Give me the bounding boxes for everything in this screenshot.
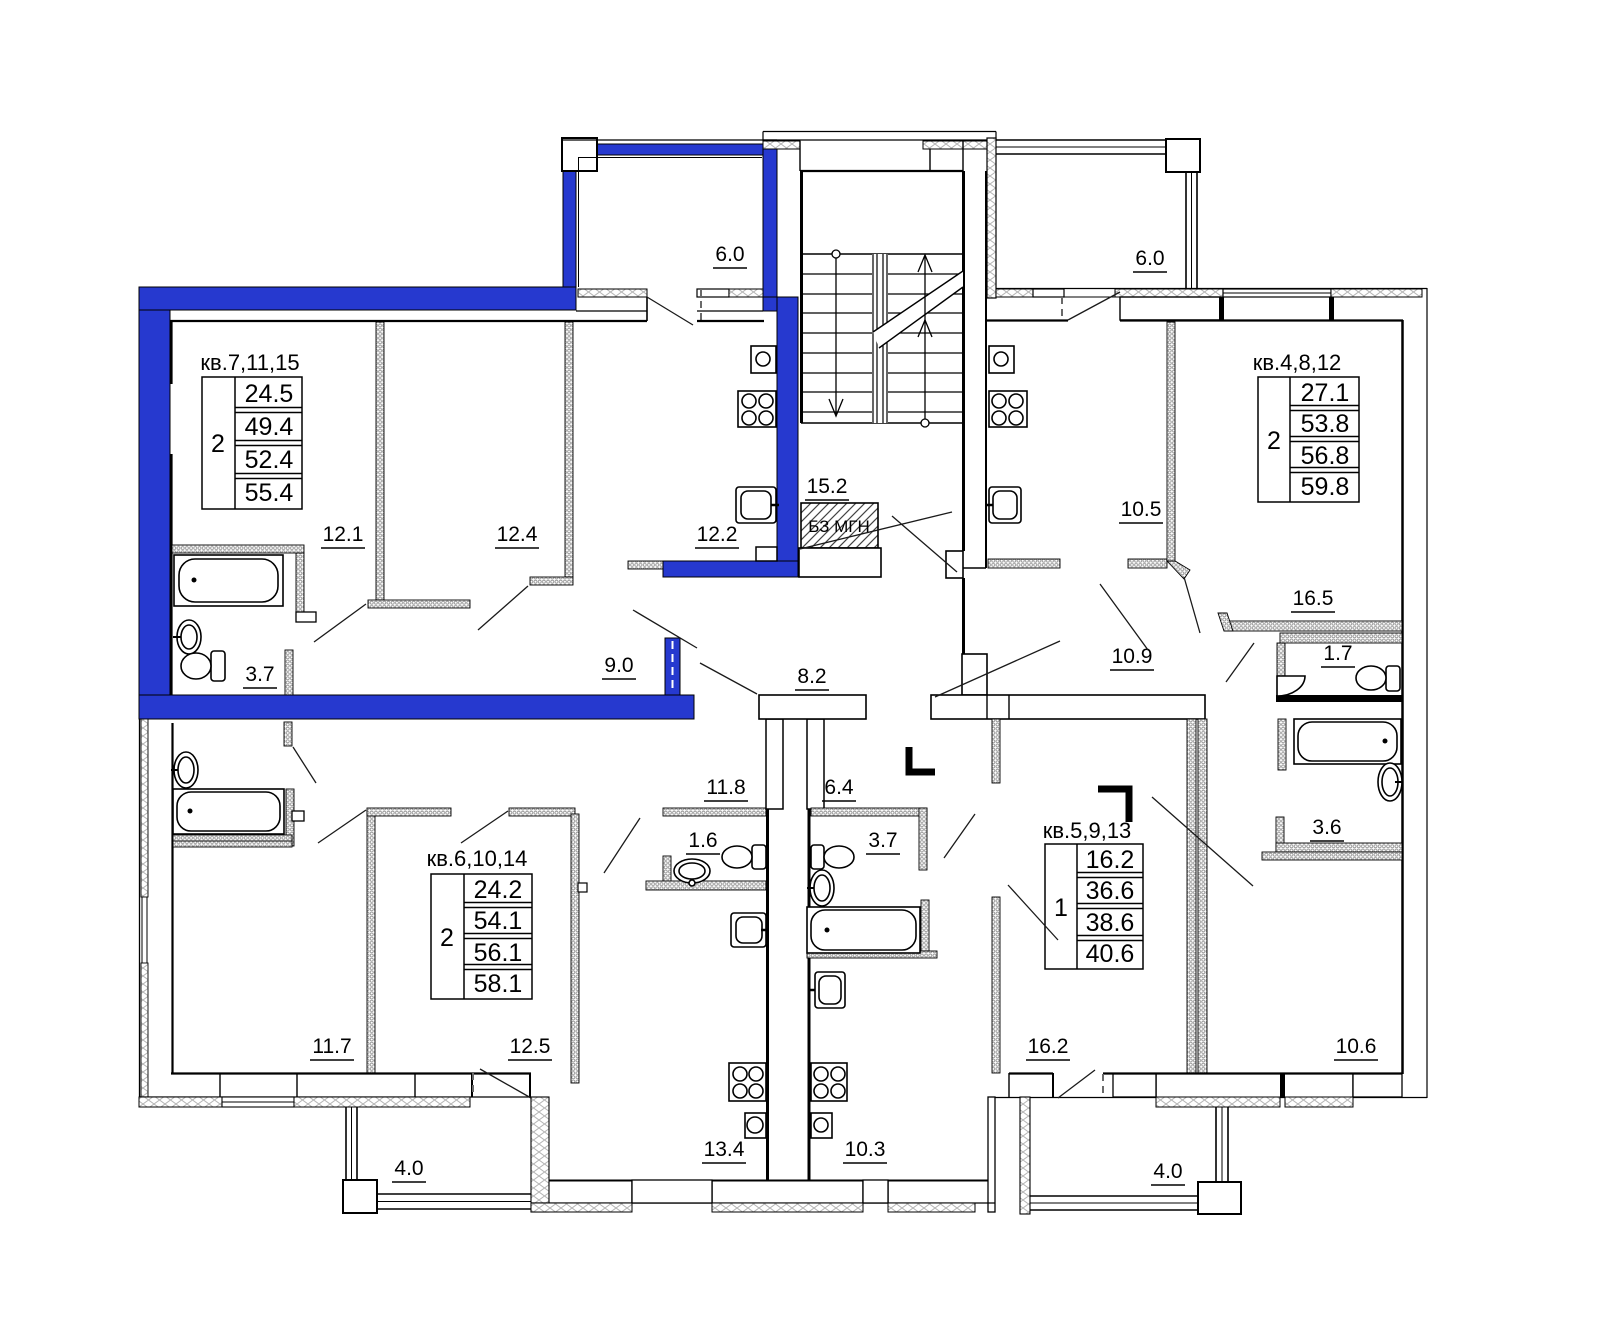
- svg-text:11.7: 11.7: [312, 1035, 351, 1058]
- svg-text:24.5: 24.5: [245, 380, 294, 408]
- svg-text:9.0: 9.0: [604, 654, 633, 677]
- svg-text:38.6: 38.6: [1086, 909, 1135, 937]
- svg-text:6.4: 6.4: [824, 776, 854, 799]
- svg-text:54.1: 54.1: [474, 907, 523, 935]
- svg-text:кв.5,9,13: кв.5,9,13: [1043, 818, 1132, 843]
- svg-text:2: 2: [1267, 427, 1281, 455]
- svg-text:56.8: 56.8: [1301, 442, 1350, 470]
- svg-text:12.1: 12.1: [323, 523, 364, 546]
- svg-text:56.1: 56.1: [474, 939, 523, 967]
- svg-text:58.1: 58.1: [474, 970, 523, 998]
- svg-text:1.7: 1.7: [1323, 642, 1352, 665]
- svg-text:10.6: 10.6: [1336, 1035, 1377, 1058]
- svg-text:49.4: 49.4: [245, 413, 294, 441]
- svg-text:3.7: 3.7: [245, 663, 274, 686]
- svg-text:53.8: 53.8: [1301, 410, 1350, 438]
- svg-text:36.6: 36.6: [1086, 877, 1135, 905]
- svg-text:12.5: 12.5: [510, 1035, 551, 1058]
- svg-text:6.0: 6.0: [1135, 247, 1164, 270]
- svg-text:16.2: 16.2: [1086, 846, 1135, 874]
- svg-text:27.1: 27.1: [1301, 379, 1350, 407]
- svg-text:16.5: 16.5: [1293, 587, 1334, 610]
- svg-text:кв.6,10,14: кв.6,10,14: [427, 846, 528, 871]
- svg-text:12.2: 12.2: [697, 523, 738, 546]
- svg-text:15.2: 15.2: [807, 475, 848, 498]
- svg-text:40.6: 40.6: [1086, 940, 1135, 968]
- svg-text:8.2: 8.2: [797, 665, 826, 688]
- svg-text:3.6: 3.6: [1312, 816, 1341, 839]
- svg-text:2: 2: [440, 924, 454, 952]
- svg-text:6.0: 6.0: [715, 243, 744, 266]
- svg-text:13.4: 13.4: [704, 1138, 745, 1161]
- svg-text:1: 1: [1054, 894, 1068, 922]
- svg-text:3.7: 3.7: [868, 829, 897, 852]
- svg-text:10.3: 10.3: [845, 1138, 886, 1161]
- svg-text:4.0: 4.0: [1153, 1160, 1182, 1183]
- svg-text:БЗ МГН: БЗ МГН: [808, 517, 870, 536]
- svg-text:12.4: 12.4: [497, 523, 538, 546]
- svg-text:кв.4,8,12: кв.4,8,12: [1253, 350, 1342, 375]
- svg-text:11.8: 11.8: [706, 776, 745, 799]
- svg-text:16.2: 16.2: [1028, 1035, 1069, 1058]
- svg-text:2: 2: [211, 430, 225, 458]
- svg-text:1.6: 1.6: [688, 829, 717, 852]
- svg-text:24.2: 24.2: [474, 876, 523, 904]
- svg-text:52.4: 52.4: [245, 446, 294, 474]
- svg-text:59.8: 59.8: [1301, 473, 1350, 501]
- svg-text:4.0: 4.0: [394, 1157, 423, 1180]
- svg-text:55.4: 55.4: [245, 479, 294, 507]
- svg-text:10.5: 10.5: [1121, 498, 1162, 521]
- svg-text:кв.7,11,15: кв.7,11,15: [200, 350, 299, 375]
